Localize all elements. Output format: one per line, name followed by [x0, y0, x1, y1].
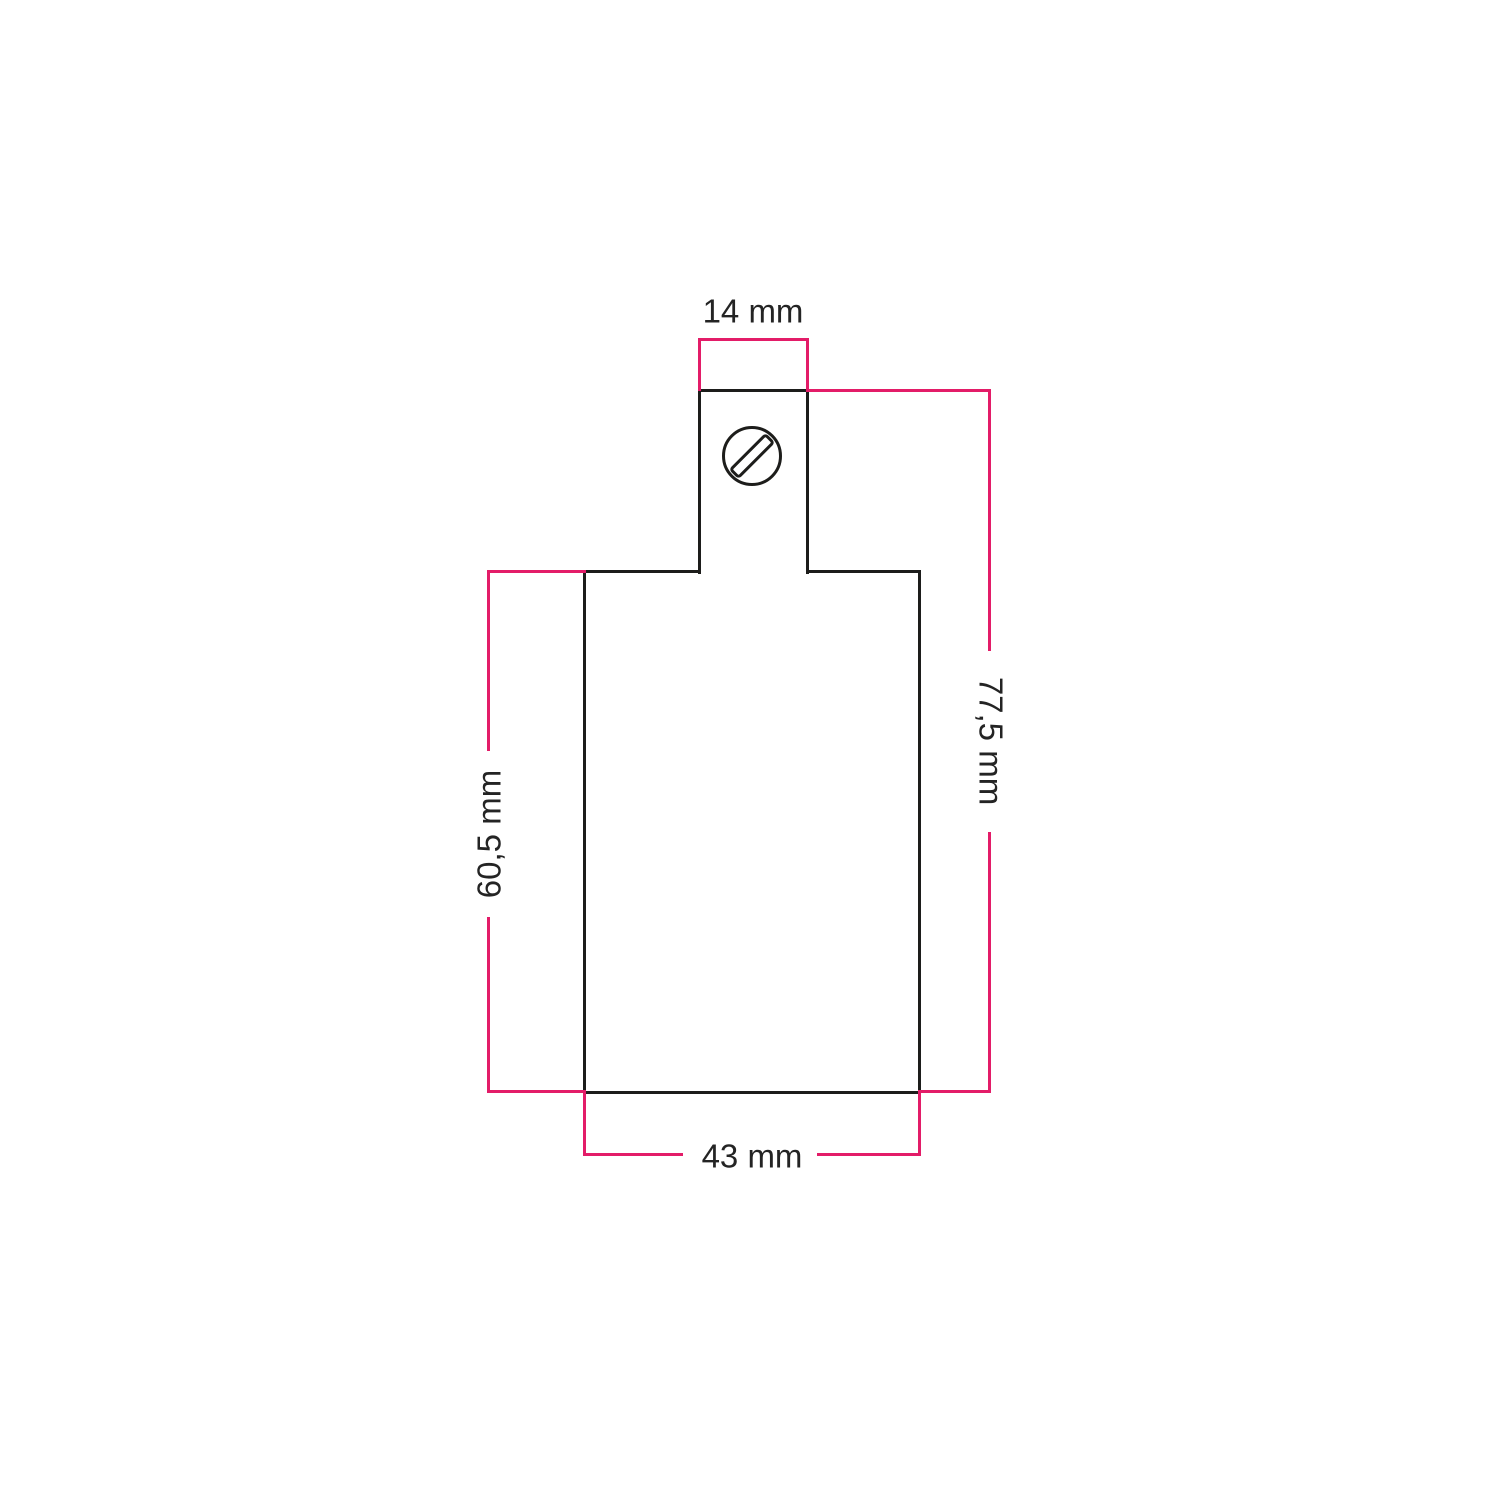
dim-top-width-left-leg [698, 338, 701, 391]
component-body-outline [583, 570, 921, 1094]
dim-body-height-top-extension [487, 570, 586, 573]
dim-body-height-line-upper [487, 570, 490, 751]
dim-label-body-height: 60,5 mm [473, 770, 506, 898]
dim-label-overall-height: 77,5 mm [975, 677, 1008, 805]
dim-body-width-line-right [817, 1153, 921, 1156]
dim-label-top-width: 14 mm [703, 295, 804, 328]
dim-body-width-right-leg [918, 1090, 921, 1156]
dim-top-width-line [698, 338, 809, 341]
dim-body-width-line-left [583, 1153, 683, 1156]
dim-top-width-right-leg [806, 338, 809, 391]
dim-body-height-line-lower [487, 917, 490, 1093]
dim-body-width-left-leg [583, 1090, 586, 1156]
dimension-diagram: 14 mm 77,5 mm 60,5 mm 43 mm [0, 0, 1500, 1500]
dim-label-body-width: 43 mm [702, 1140, 803, 1173]
dim-overall-height-top-extension [806, 389, 991, 392]
dim-overall-height-line-upper [988, 389, 991, 651]
dim-overall-height-bottom-extension [918, 1090, 991, 1093]
dim-body-height-bottom-extension [487, 1090, 586, 1093]
dim-overall-height-line-lower [988, 832, 991, 1093]
